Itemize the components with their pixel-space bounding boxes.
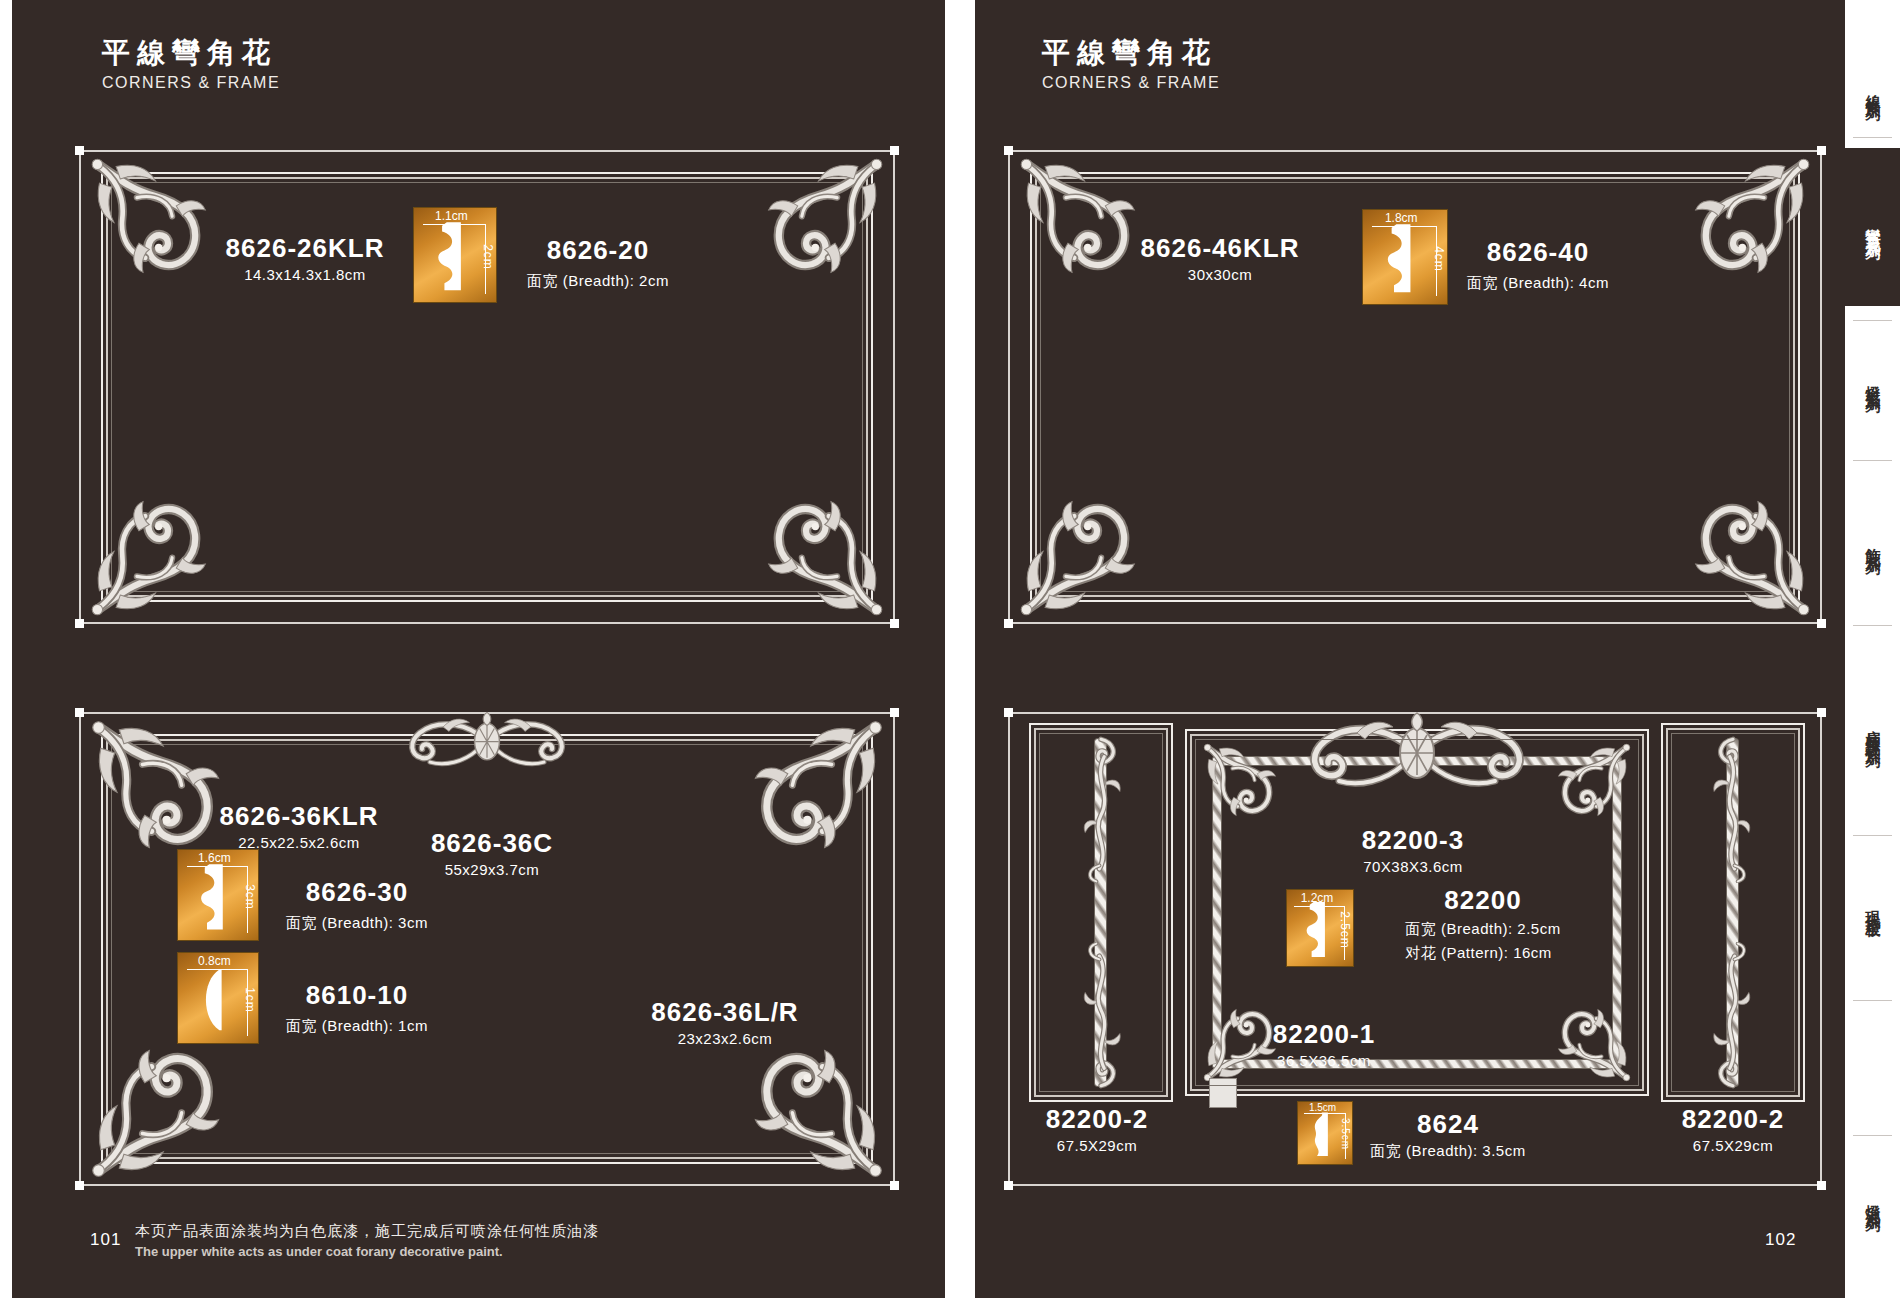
- product-size: 67.5X29cm: [1658, 1137, 1808, 1154]
- corner-mark: [890, 619, 899, 628]
- product-label: 82200-2 67.5X29cm: [1022, 1105, 1172, 1154]
- sidebar-divider: [1853, 320, 1892, 321]
- product-label: 8626-40 面宽 (Breadth): 4cm: [1428, 238, 1648, 293]
- sidebar-item-label: 燈池系列: [1863, 1193, 1882, 1209]
- product-code: 8624: [1343, 1110, 1553, 1139]
- profile-width-label: 1.1cm: [414, 209, 489, 223]
- footnote: 本页产品表面涂装均为白色底漆，施工完成后可喷涂任何性质油漆 The upper …: [135, 1222, 599, 1259]
- sidebar-divider: [1853, 137, 1892, 138]
- side-panel-right: [1661, 723, 1805, 1102]
- product-code: 8626-40: [1428, 238, 1648, 267]
- product-code: 82200-2: [1022, 1105, 1172, 1134]
- corner-mark: [1817, 1181, 1826, 1190]
- profile-swatch: 1.1cm 2cm: [414, 208, 496, 302]
- crest-ornament: [392, 700, 582, 792]
- product-code: 8610-10: [247, 981, 467, 1010]
- profile-swatch: 0.8cm 1cm: [178, 953, 258, 1043]
- scroll-ornament: [1701, 942, 1765, 1092]
- corner-mark: [890, 146, 899, 155]
- profile-swatch: 1.2cm 2.5cm: [1287, 890, 1353, 966]
- corner-mark: [890, 1181, 899, 1190]
- product-size: 36.5X36.5cm: [1224, 1052, 1424, 1069]
- sidebar-item-pilaster-roman-columns[interactable]: 扁柱羅馬柱系列: [1845, 642, 1900, 820]
- product-code: 82200-1: [1224, 1020, 1424, 1049]
- corner-mark: [1004, 619, 1013, 628]
- bottom-frame: 8626-36KLR 22.5x22.5x2.6cm 8626-36C 55x2…: [79, 712, 895, 1186]
- corner-ornament: [737, 716, 887, 866]
- product-label: 82200-2 67.5X29cm: [1658, 1105, 1808, 1154]
- footnote-english: The upper white acts as under coat foran…: [135, 1244, 599, 1259]
- corner-ornament: [87, 1032, 237, 1182]
- profile-width-label: 1.2cm: [1287, 891, 1347, 905]
- sidebar-divider: [1853, 1000, 1892, 1001]
- corner-ornament: [1201, 741, 1286, 826]
- bottom-frame: 82200-3 70X38X3.6cm 1.2cm 2.5cm 82200 面宽…: [1008, 712, 1822, 1186]
- corner-ornament: [1016, 485, 1151, 620]
- sidebar-item-label: 彎角花系列: [1863, 217, 1882, 237]
- sidebar-divider: [1853, 625, 1892, 626]
- footnote-chinese: 本页产品表面涂装均为白色底漆，施工完成后可喷涂任何性质油漆: [135, 1222, 599, 1241]
- page-number: 101: [90, 1230, 121, 1250]
- sidebar-item-lamp-pools[interactable]: 燈池系列: [1845, 1145, 1900, 1257]
- product-label: 8626-36KLR 22.5x22.5x2.6cm: [189, 802, 409, 851]
- page-number: 102: [1765, 1230, 1796, 1250]
- crest-ornament: [1277, 709, 1557, 809]
- product-code: 8626-36L/R: [615, 998, 835, 1027]
- profile-swatch: 1.6cm 3cm: [178, 850, 258, 940]
- corner-ornament: [1548, 999, 1633, 1084]
- page-right: 平線彎角花 CORNERS & FRAME 8626-46KLR 30x30cm…: [975, 0, 1845, 1298]
- side-panel-left: [1029, 723, 1173, 1102]
- corner-mark: [1004, 708, 1013, 717]
- sidebar-item-label: 現代壁板: [1863, 898, 1882, 914]
- sidebar-item-modern-wall-panels[interactable]: 現代壁板: [1845, 850, 1900, 962]
- page-title: 平線彎角花 CORNERS & FRAME: [1042, 38, 1220, 92]
- product-label: 8626-30 面宽 (Breadth): 3cm: [247, 878, 467, 933]
- corner-ornament: [737, 1032, 887, 1182]
- sidebar-item-label: 飾花系列: [1863, 536, 1882, 552]
- corner-mark: [75, 1181, 84, 1190]
- corner-mark: [75, 619, 84, 628]
- corner-mark: [1004, 1181, 1013, 1190]
- corner-ornament: [1679, 154, 1814, 289]
- product-spec: 面宽 (Breadth): 2cm: [488, 272, 708, 291]
- corner-ornament: [1548, 741, 1633, 826]
- product-size: 30x30cm: [1110, 266, 1330, 283]
- scroll-ornament: [1069, 733, 1133, 883]
- profile-height-label: 2.5cm: [1338, 911, 1352, 949]
- profile-width-label: 1.5cm: [1298, 1102, 1347, 1113]
- product-code: 8626-46KLR: [1110, 234, 1330, 263]
- product-label: 8626-26KLR 14.3x14.3x1.8cm: [195, 234, 415, 283]
- corner-mark: [1004, 146, 1013, 155]
- product-label: 82200 面宽 (Breadth): 2.5cm 对花 (Pattern): …: [1358, 886, 1608, 963]
- sidebar-item-lamp-plates[interactable]: 燈盤系列: [1845, 328, 1900, 436]
- dimension-line: [423, 224, 486, 294]
- sidebar-item-label: 線條系列: [1863, 82, 1882, 98]
- title-chinese: 平線彎角花: [1042, 38, 1220, 69]
- page-title: 平線彎角花 CORNERS & FRAME: [102, 38, 280, 92]
- product-spec: 面宽 (Breadth): 3.5cm: [1343, 1142, 1553, 1161]
- product-code: 8626-36KLR: [189, 802, 409, 831]
- product-spec: 面宽 (Breadth): 3cm: [247, 914, 467, 933]
- corner-mark: [890, 708, 899, 717]
- top-frame: 8626-46KLR 30x30cm 1.8cm 4cm 8626-40 面宽 …: [1008, 150, 1822, 624]
- product-code: 8626-30: [247, 878, 467, 907]
- profile-width-label: 1.6cm: [178, 851, 251, 865]
- profile-width-label: 1.8cm: [1363, 211, 1439, 225]
- product-code: 82200-3: [1303, 826, 1523, 855]
- sidebar-divider: [1853, 1135, 1892, 1136]
- product-label: 8624 面宽 (Breadth): 3.5cm: [1343, 1110, 1553, 1161]
- corner-ornament: [1679, 485, 1814, 620]
- product-size: 70X38X3.6cm: [1303, 858, 1523, 875]
- sidebar-divider: [1853, 835, 1892, 836]
- dimension-line: [187, 969, 249, 1036]
- page-left: 平線彎角花 CORNERS & FRAME 8626-26KLR 14.3x14…: [12, 0, 945, 1298]
- sidebar-item-label: 扁柱羅馬柱系列: [1863, 717, 1882, 745]
- product-size: 67.5X29cm: [1022, 1137, 1172, 1154]
- sidebar-item-label: 燈盤系列: [1863, 374, 1882, 390]
- corner-ornament: [752, 154, 887, 289]
- product-code: 8626-36C: [382, 829, 602, 858]
- corner-mark: [1817, 708, 1826, 717]
- product-label: 82200-3 70X38X3.6cm: [1303, 826, 1523, 875]
- product-label: 8626-20 面宽 (Breadth): 2cm: [488, 236, 708, 291]
- profile-width-label: 0.8cm: [178, 954, 251, 968]
- title-english: CORNERS & FRAME: [1042, 74, 1220, 92]
- product-size: 55x29x3.7cm: [382, 861, 602, 878]
- top-frame: 8626-26KLR 14.3x14.3x1.8cm 1.1cm 2cm 862…: [79, 150, 895, 624]
- title-english: CORNERS & FRAME: [102, 74, 280, 92]
- product-code: 82200: [1358, 886, 1608, 915]
- product-size: 14.3x14.3x1.8cm: [195, 266, 415, 283]
- product-spec: 对花 (Pattern): 16cm: [1405, 944, 1560, 963]
- product-label: 8626-46KLR 30x30cm: [1110, 234, 1330, 283]
- corner-mark: [1817, 146, 1826, 155]
- sidebar-item-corner-flowers[interactable]: 彎角花系列: [1845, 148, 1900, 306]
- dimension-line: [187, 866, 249, 933]
- product-spec: 面宽 (Breadth): 1cm: [247, 1017, 467, 1036]
- product-label: 82200-1 36.5X36.5cm: [1224, 1020, 1424, 1069]
- product-code: 8626-20: [488, 236, 708, 265]
- molding-endcap: [1209, 1078, 1237, 1108]
- product-label: 8626-36L/R 23x23x2.6cm: [615, 998, 835, 1047]
- product-size: 23x23x2.6cm: [615, 1030, 835, 1047]
- corner-mark: [75, 146, 84, 155]
- corner-ornament: [752, 485, 887, 620]
- scroll-ornament: [1069, 942, 1133, 1092]
- sidebar-item-decor-flowers[interactable]: 飾花系列: [1845, 490, 1900, 598]
- sidebar: 線條系列 彎角花系列 燈盤系列 飾花系列 扁柱羅馬柱系列 現代壁板 燈池系列: [1845, 0, 1900, 1298]
- corner-ornament: [87, 485, 222, 620]
- product-code: 8626-26KLR: [195, 234, 415, 263]
- product-code: 82200-2: [1658, 1105, 1808, 1134]
- product-label: 8626-36C 55x29x3.7cm: [382, 829, 602, 878]
- product-label: 8610-10 面宽 (Breadth): 1cm: [247, 981, 467, 1036]
- sidebar-divider: [1853, 460, 1892, 461]
- corner-mark: [75, 708, 84, 717]
- corner-mark: [1817, 619, 1826, 628]
- sidebar-item-lines[interactable]: 線條系列: [1845, 40, 1900, 140]
- product-spec: 面宽 (Breadth): 4cm: [1428, 274, 1648, 293]
- title-chinese: 平線彎角花: [102, 38, 280, 69]
- product-size: 22.5x22.5x2.6cm: [189, 834, 409, 851]
- product-spec: 面宽 (Breadth): 2.5cm: [1405, 920, 1560, 939]
- scroll-ornament: [1701, 733, 1765, 883]
